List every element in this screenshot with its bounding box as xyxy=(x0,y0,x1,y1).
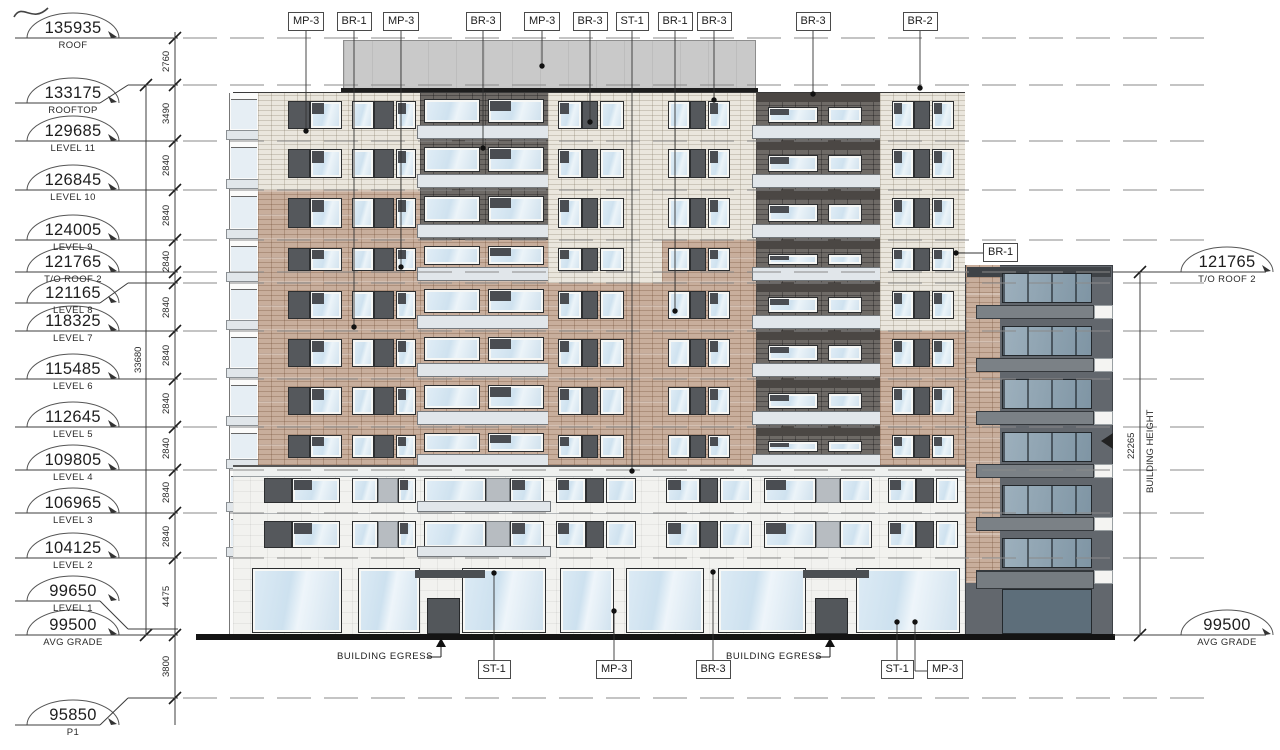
dimension-text: 2840 xyxy=(158,508,176,564)
level-marker-name: LEVEL 1 xyxy=(18,603,128,614)
level-marker-value: 135935 xyxy=(18,19,128,37)
overall-dimension-text: 33680 xyxy=(130,332,148,388)
egress-label: BUILDING EGRESS xyxy=(726,651,812,662)
level-marker-value: 121765 xyxy=(18,253,128,271)
level-marker-name: AVG GRADE xyxy=(1172,637,1280,648)
level-marker-value: 104125 xyxy=(18,539,128,557)
level-marker-name: LEVEL 10 xyxy=(18,192,128,203)
level-marker-name: ROOFTOP xyxy=(18,105,128,116)
building-height-label: BUILDING HEIGHT xyxy=(1142,405,1160,497)
level-marker-value: 99650 xyxy=(18,582,128,600)
level-marker-name: LEVEL 3 xyxy=(18,515,128,526)
material-tag: BR-1 xyxy=(983,243,1018,262)
level-marker-name: LEVEL 9 xyxy=(18,242,128,253)
material-tag: BR-1 xyxy=(337,12,372,31)
material-tag: MP-3 xyxy=(596,660,632,679)
level-marker-value: 129685 xyxy=(18,122,128,140)
level-marker-name: LEVEL 11 xyxy=(18,143,128,154)
level-marker-name: T/O ROOF 2 xyxy=(1172,274,1280,285)
material-tag: ST-1 xyxy=(616,12,649,31)
level-marker-value: 124005 xyxy=(18,221,128,239)
level-marker-name: LEVEL 7 xyxy=(18,333,128,344)
material-tag: ST-1 xyxy=(478,660,511,679)
level-marker-name: LEVEL 6 xyxy=(18,381,128,392)
level-marker-value: 133175 xyxy=(18,84,128,102)
level-marker-name: AVG GRADE xyxy=(18,637,128,648)
dimension-text: 4475 xyxy=(158,568,176,624)
material-tag: MP-3 xyxy=(383,12,419,31)
material-tag: ST-1 xyxy=(881,660,914,679)
building-height-value: 22265 xyxy=(1123,418,1141,474)
material-tag: BR-3 xyxy=(696,660,731,679)
material-tag: MP-3 xyxy=(927,660,963,679)
level-marker-value: 109805 xyxy=(18,451,128,469)
level-marker-value: 126845 xyxy=(18,171,128,189)
level-marker-value: 99500 xyxy=(1172,616,1280,634)
level-marker-name: P1 xyxy=(18,727,128,738)
material-tag: BR-3 xyxy=(573,12,608,31)
level-marker-value: 95850 xyxy=(18,706,128,724)
material-tag: MP-3 xyxy=(524,12,560,31)
level-marker-name: LEVEL 4 xyxy=(18,472,128,483)
level-marker-value: 115485 xyxy=(18,360,128,378)
level-marker-name: ROOF xyxy=(18,40,128,51)
level-marker-value: 121165 xyxy=(18,284,128,302)
dimension-text: 3490 xyxy=(158,85,176,141)
level-marker-name: LEVEL 5 xyxy=(18,429,128,440)
material-tag: BR-3 xyxy=(697,12,732,31)
annotation-labels: 135935ROOF133175ROOFTOP129685LEVEL 11126… xyxy=(0,0,1280,750)
dimension-text: 2840 xyxy=(158,137,176,193)
material-tag: BR-3 xyxy=(796,12,831,31)
level-marker-value: 99500 xyxy=(18,616,128,634)
dimension-text: 3800 xyxy=(158,638,176,694)
elevation-drawing: 135935ROOF133175ROOFTOP129685LEVEL 11126… xyxy=(0,0,1280,750)
material-tag: BR-2 xyxy=(903,12,938,31)
material-tag: BR-1 xyxy=(658,12,693,31)
egress-label: BUILDING EGRESS xyxy=(337,651,423,662)
material-tag: BR-3 xyxy=(466,12,501,31)
level-marker-name: LEVEL 2 xyxy=(18,560,128,571)
level-marker-value: 121765 xyxy=(1172,253,1280,271)
material-tag: MP-3 xyxy=(288,12,324,31)
level-marker-value: 112645 xyxy=(18,408,128,426)
level-marker-value: 118325 xyxy=(18,312,128,330)
dimension-text: 2760 xyxy=(158,33,176,89)
level-marker-value: 106965 xyxy=(18,494,128,512)
